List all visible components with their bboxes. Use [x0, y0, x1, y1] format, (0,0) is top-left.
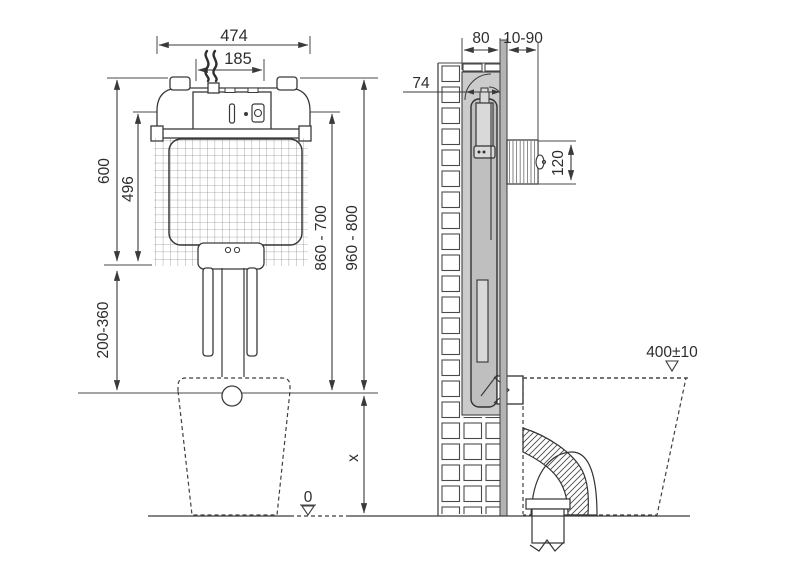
inspection-slot: [230, 104, 235, 123]
dim-label-panel-height-range: 860 - 700: [313, 205, 330, 271]
dim-label-cistern-depth: 74: [412, 75, 430, 92]
mounting-bracket-right: [277, 77, 297, 90]
installation-drawing: 474 185 600 496 200-360 860 - 700 960 - …: [0, 0, 800, 565]
flush-tube-side: [477, 280, 488, 362]
dim-label-floor-level: 0: [304, 489, 313, 506]
brick-wall-lower: [462, 417, 501, 514]
dim-label-bowl-height-var: x: [345, 454, 362, 462]
flush-plate-hatch: [507, 140, 538, 184]
mounting-bracket-left: [170, 77, 190, 90]
flush-tube-left: [203, 268, 213, 356]
dim-label-overall-width: 474: [220, 27, 248, 45]
dim-label-niche-depth: 80: [472, 30, 490, 47]
water-supply-icon: [205, 51, 216, 81]
technical-drawing-page: 474 185 600 496 200-360 860 - 700 960 - …: [0, 0, 800, 565]
water-inlet-connector: [208, 83, 219, 93]
flush-tube-right: [247, 268, 257, 356]
floor-datum: 0: [300, 489, 316, 515]
dim-label-inlet-width: 185: [224, 50, 252, 68]
floor-flange: [526, 499, 570, 509]
front-view: 474 185 600 496 200-360 860 - 700 960 - …: [78, 27, 378, 515]
datum-triangle-icon: [666, 361, 678, 371]
flush-elbow: [198, 243, 264, 269]
dim-label-flush-plate-height: 120: [550, 150, 567, 176]
panel-tab-right: [248, 88, 258, 93]
side-view: 80 10-90 74 120 400±10: [403, 30, 698, 551]
dim-label-flush-pipe-adjust: 200-360: [95, 301, 112, 358]
drain-pipe-below-floor: [532, 509, 564, 543]
dim-label-frame-height: 600: [96, 158, 113, 184]
flush-pipes-inner: [222, 268, 244, 377]
tank-rim: [154, 129, 310, 138]
dim-label-frame-top-range: 960 - 800: [344, 205, 361, 271]
brick-lintel-1: [463, 64, 482, 71]
brick-wall-upper: [440, 64, 462, 514]
dim-label-finish-thickness: 10-90: [503, 30, 543, 47]
bowl-outlet-circle: [222, 386, 242, 406]
panel-clip: [252, 104, 264, 122]
seat-height-datum: 400±10: [646, 344, 698, 371]
datum-triangle-icon: [302, 506, 314, 515]
wall-finish-layer: [500, 40, 507, 516]
dim-label-tank-height: 496: [120, 176, 137, 202]
dim-label-seat-height: 400±10: [646, 344, 698, 361]
panel-tab-left: [225, 88, 235, 93]
panel-dot: [244, 112, 248, 116]
